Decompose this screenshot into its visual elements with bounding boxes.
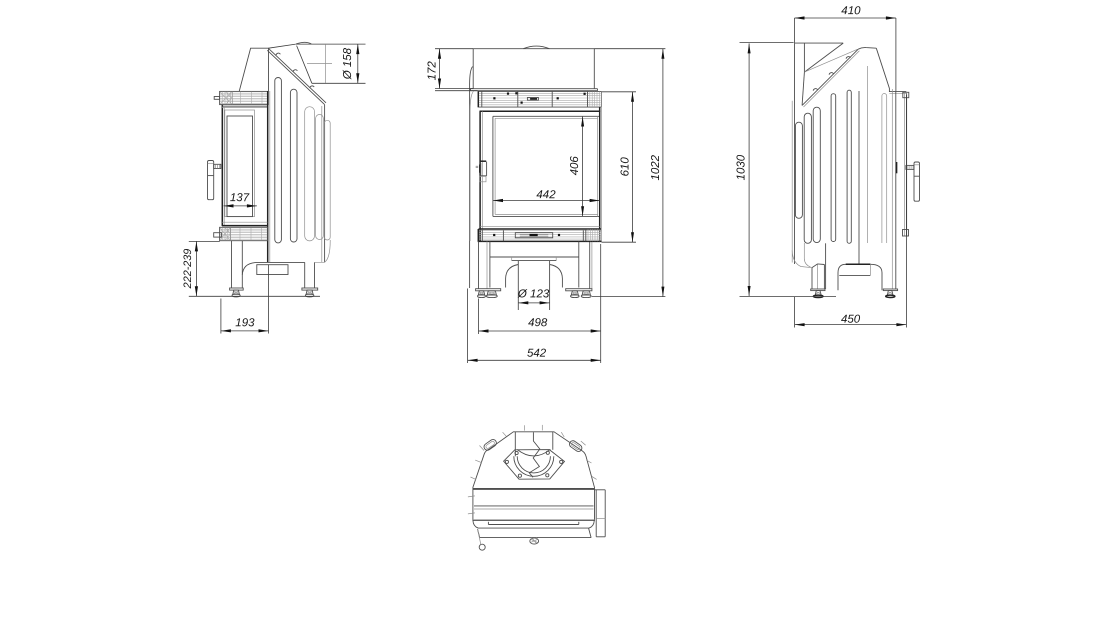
svg-text:442: 442 <box>536 189 556 201</box>
svg-text:406: 406 <box>569 156 581 176</box>
svg-text:498: 498 <box>528 317 548 329</box>
svg-text:410: 410 <box>841 5 861 17</box>
svg-text:Ø 158: Ø 158 <box>342 47 354 80</box>
svg-text:1022: 1022 <box>650 154 662 180</box>
svg-text:137: 137 <box>230 192 250 204</box>
svg-text:450: 450 <box>841 314 861 326</box>
svg-text:222-239: 222-239 <box>182 249 194 290</box>
svg-text:610: 610 <box>619 157 631 177</box>
svg-text:1030: 1030 <box>735 154 747 180</box>
svg-text:542: 542 <box>527 348 547 360</box>
svg-text:172: 172 <box>427 61 439 81</box>
svg-text:Ø 123: Ø 123 <box>517 288 550 300</box>
svg-text:193: 193 <box>235 317 255 329</box>
